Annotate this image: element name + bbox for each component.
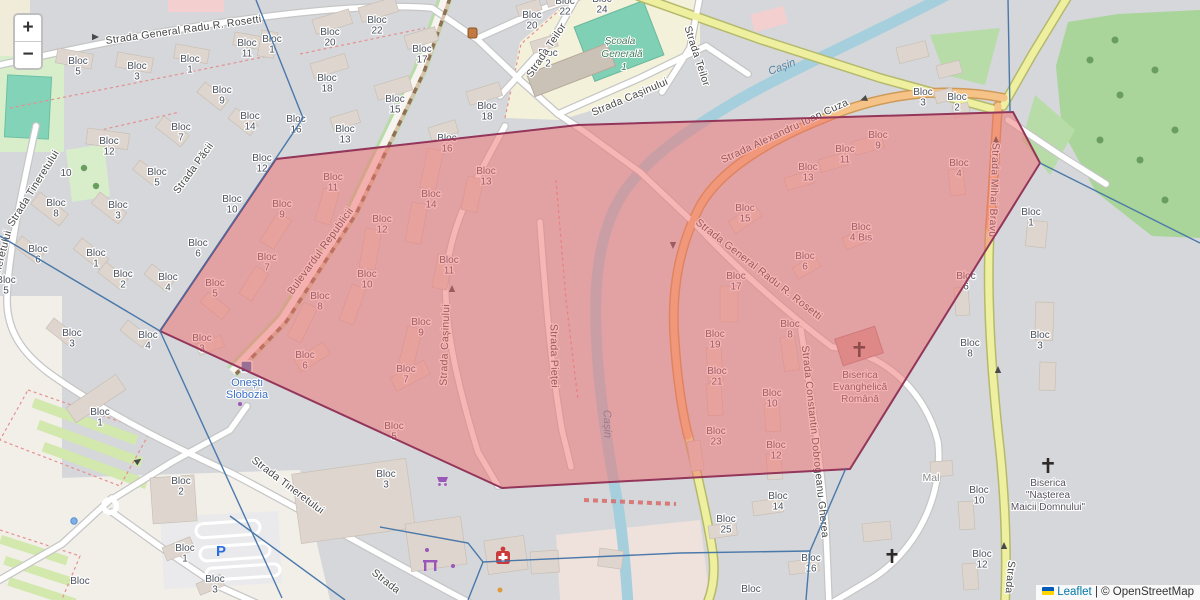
dot-icon	[498, 588, 503, 593]
poi-label: Maicii Domnului"	[1011, 502, 1086, 513]
map-canvas[interactable]: Bloc5Bloc3Bloc1Bloc11Bloc1Bloc9Bloc14Blo…	[0, 0, 1200, 600]
school-label: Școala	[605, 36, 636, 47]
bloc-label: Bloc	[70, 576, 89, 587]
poi-label: Biserica	[1030, 478, 1066, 489]
dot-icon	[425, 548, 429, 552]
station-label: Slobozia	[226, 389, 269, 401]
osm-copyright[interactable]: © OpenStreetMap	[1101, 586, 1194, 598]
dot-icon	[238, 402, 242, 406]
station-label: Onești	[231, 377, 263, 389]
leaflet-link[interactable]: Leaflet	[1057, 586, 1092, 598]
school-label: 1	[621, 62, 627, 73]
bloc-label: Bloc	[741, 584, 760, 595]
poi-label: "Nașterea	[1026, 490, 1071, 501]
map[interactable]: Bloc5Bloc3Bloc1Bloc11Bloc1Bloc9Bloc14Blo…	[0, 0, 1200, 600]
zoom-in-button[interactable]: +	[15, 15, 41, 42]
ukraine-flag-icon	[1042, 587, 1054, 595]
attribution-bar: Leaflet | © OpenStreetMap	[1036, 585, 1200, 600]
zoom-out-button[interactable]: −	[15, 42, 41, 68]
attribution-separator: |	[1092, 586, 1101, 598]
fountain-icon	[71, 518, 77, 524]
bloc-label: 10	[60, 168, 72, 179]
zoom-control: + −	[13, 13, 43, 70]
parking-label: P	[216, 543, 226, 560]
school-label: Generală	[601, 49, 643, 60]
dot-icon	[451, 564, 455, 568]
pub-icon	[468, 28, 477, 38]
minor-label: Mal	[923, 472, 940, 484]
